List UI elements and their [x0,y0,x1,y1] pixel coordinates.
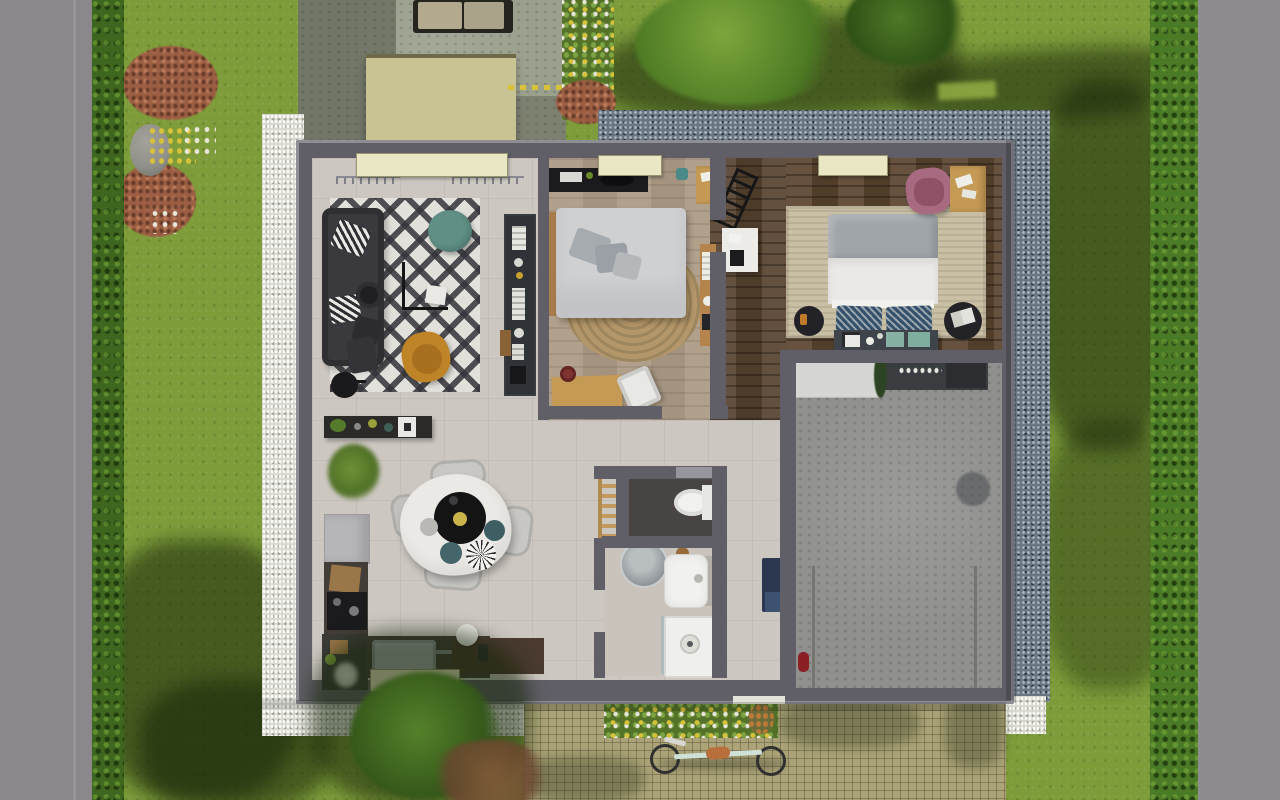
outdoor-sofa-cushion [464,2,504,29]
eave-shadow [524,702,1006,711]
cutting-board [329,565,362,594]
shelf-box [946,360,986,388]
sofa-throw [345,336,378,374]
bowl-red [560,366,576,382]
road-right [1198,0,1280,800]
shadow-light-gap [938,80,997,100]
side-table-white [425,285,447,306]
wall [780,350,796,688]
wc-door [676,467,712,478]
tray-dot [449,496,458,505]
armchair-pink-seat [914,178,944,206]
road-left-seam [73,0,76,800]
wall [594,538,605,590]
sideboard-decor [384,423,393,432]
plate-gray [420,518,438,536]
white-flowers [150,208,180,234]
dresser-tray [560,172,582,182]
vase-teal [676,168,688,180]
outdoor-sofa-cushion [418,2,462,29]
shelf-bottles [898,366,942,376]
window-bedroom-1 [598,155,662,176]
bench-decor [877,333,883,339]
window-living [356,153,508,177]
wall [712,466,727,678]
bench-art-frame [842,332,860,347]
nightstand-left [794,306,824,336]
console-frame [730,250,744,266]
hedge-right [1150,0,1198,800]
floor-plan-render [0,0,1280,800]
shelf-recess [510,366,526,384]
bench-towel-teal [886,332,904,347]
bed-2-duvet [828,258,938,304]
shower-head [687,641,693,647]
washbasin-faucet [694,574,703,583]
bench-decor [866,337,874,345]
wall [710,158,726,220]
floor-lamp-stem [352,380,366,383]
wall [710,252,726,419]
sideboard-box-dot [404,423,411,431]
carport-roof [366,54,516,148]
shelf-decor [516,272,523,279]
coffee-table-teal [428,210,472,252]
road-left [0,0,92,800]
plate-teal [484,520,505,541]
curtain-rail [452,176,524,184]
potted-plant [328,444,380,500]
garage-door-track [812,566,815,688]
hedge-left [92,0,124,800]
window-bedroom-2 [818,155,888,176]
shower-glass [661,616,664,674]
path-marking [508,85,566,90]
sideboard-decor [368,419,377,428]
dresser-decor [586,172,593,179]
bed-2-headboard-block [828,214,938,260]
bed-2-pillow [836,305,883,333]
floor-lamp [331,372,358,398]
fridge [324,514,370,564]
floor-drain [956,472,990,506]
fire-extinguisher [798,652,809,672]
decor-starburst [466,540,496,570]
console-paper [728,233,741,244]
armchair-mustard-seat [412,344,442,374]
tray-dish [453,512,467,526]
decor-clock-arm [402,307,448,310]
wood-stool [500,330,511,356]
sofa-tray-table [356,282,382,308]
wall [538,406,662,419]
wall [616,478,629,536]
shelf-books [512,226,526,250]
decor-clock-arm [402,262,405,310]
cooktop [327,592,367,630]
workbench-white [794,360,880,398]
shelf-decor [514,258,523,267]
white-flowers [182,124,216,160]
nightstand-decor [800,314,807,325]
garage-floor [796,363,1002,688]
eave-shadow [1006,140,1016,700]
sideboard-plant [330,419,346,432]
shelf-books [512,288,525,320]
cooktop-burner [349,606,359,616]
garage-door-track [974,566,977,688]
bed-2-pillow [886,305,933,333]
shrub-red [123,46,218,120]
shelf-books [512,344,524,360]
wall [594,632,605,678]
wall [538,158,549,408]
curtain-rail [336,176,400,184]
sideboard-decor [354,423,361,430]
shelf-decor [514,328,524,338]
cooktop-burner [333,598,341,606]
wall [780,350,1002,363]
bench-towel-teal [908,332,930,347]
wall [602,536,714,548]
plate-teal [440,542,462,564]
